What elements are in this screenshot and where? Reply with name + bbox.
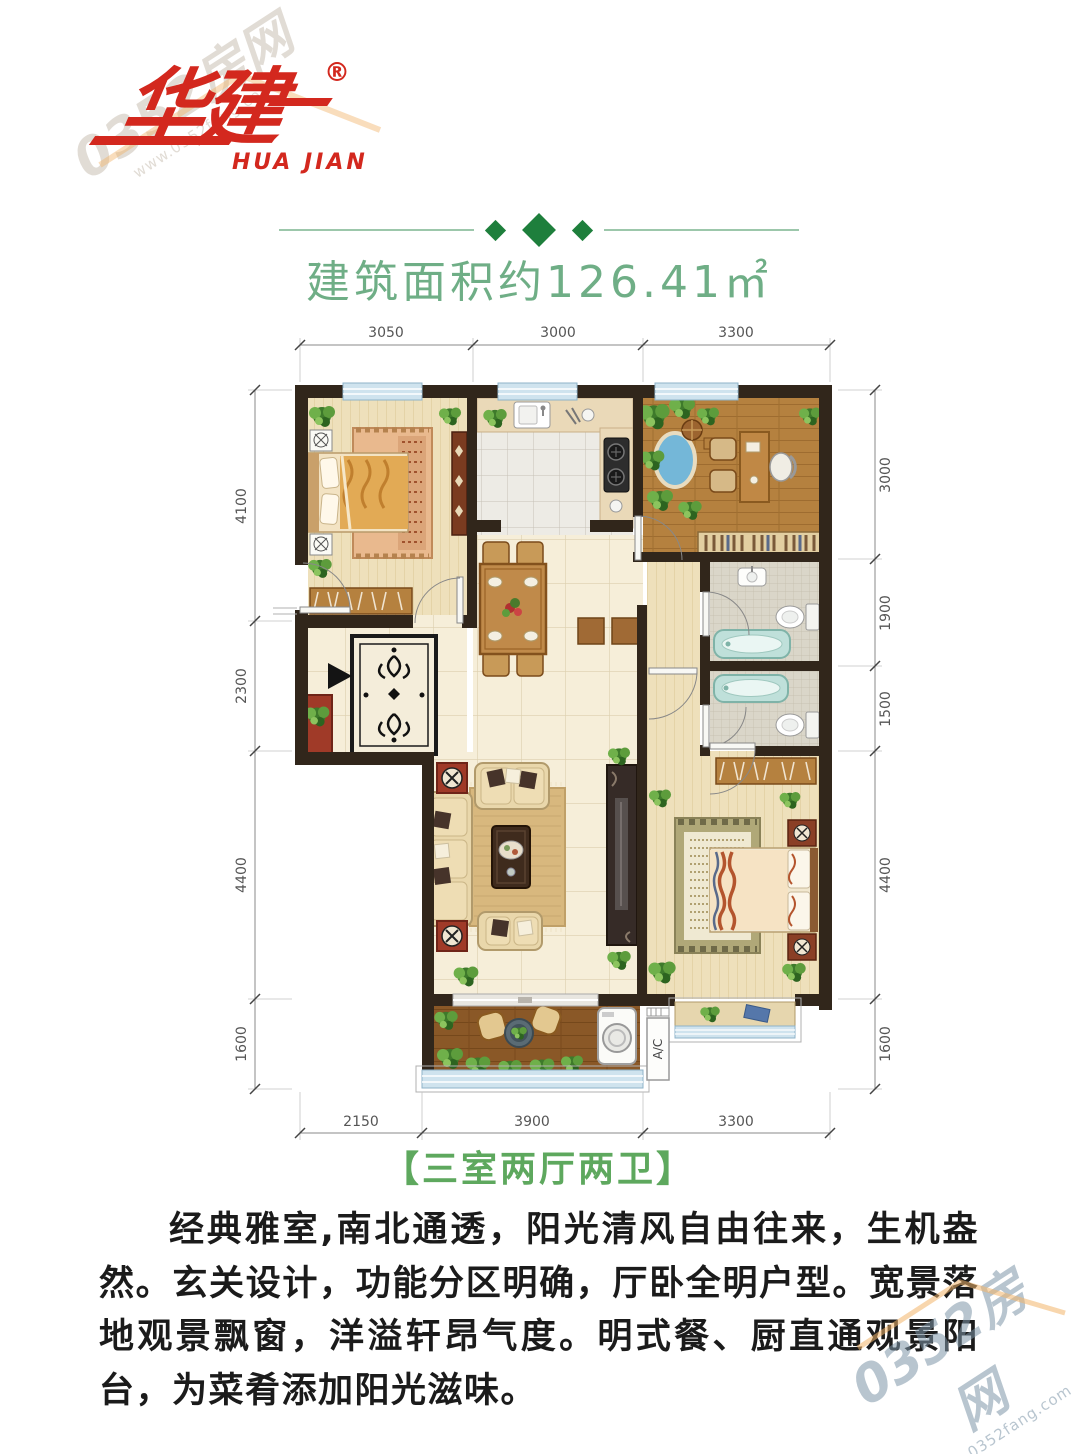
side-stool [612, 618, 638, 644]
dim-label: 1500 [878, 691, 894, 727]
layout-tag: 【三室两厅两卫】 [0, 1140, 1078, 1192]
dim-top: 3050 3000 3300 [295, 325, 835, 382]
master-bay-window [669, 998, 801, 1042]
side-table-compass [437, 921, 467, 951]
diamond-icon [572, 219, 593, 240]
window [498, 383, 577, 400]
logo-chinese-text: 华建 [115, 66, 286, 150]
dim-left: 4100 2300 4400 1600 [234, 385, 292, 1094]
window [655, 383, 738, 400]
page-title: 建筑面积约126.41㎡ [0, 246, 1078, 310]
coffee-table [492, 826, 530, 888]
kitchen-sink [514, 402, 550, 428]
balcony-glazing [416, 1066, 649, 1092]
bedroom1-bed [308, 453, 408, 532]
balcony-slider-door [453, 994, 598, 1006]
bathroom2-toilet [776, 712, 819, 738]
dim-label: 1600 [234, 1026, 250, 1062]
dining-table [480, 564, 546, 654]
dim-label: 1600 [878, 1026, 894, 1062]
kitchen-bowl [582, 409, 594, 421]
ornament-divider [0, 218, 1078, 242]
washing-machine [598, 1008, 636, 1064]
bathroom1-toilet [776, 604, 819, 630]
window [343, 383, 422, 400]
ac-label: A/C [651, 1039, 665, 1060]
dim-label: 3000 [540, 325, 576, 341]
gas-hob [604, 438, 629, 492]
dim-label: 4400 [234, 857, 250, 893]
registered-trademark-icon: ® [324, 58, 350, 88]
study-chair [770, 453, 792, 481]
corridor-floor [647, 562, 700, 751]
kitchen-dish [610, 500, 622, 512]
dim-label: 2300 [234, 668, 250, 704]
diamond-icon [485, 219, 506, 240]
dim-label: 1900 [878, 595, 894, 631]
dim-right: 3000 1900 1500 4400 1600 [838, 385, 894, 1094]
entry-rug [352, 636, 436, 754]
dim-label: 3000 [878, 457, 894, 493]
master-bed [710, 848, 818, 932]
dim-bottom: 2150 3900 3300 [295, 1092, 835, 1140]
bathroom1-sink [738, 566, 766, 586]
dim-label: 3300 [718, 1114, 754, 1130]
floorplan: A/C 3050 3000 3300 2150 3900 3300 [170, 320, 910, 1160]
study-bookshelf [698, 532, 820, 554]
dim-label: 4100 [234, 488, 250, 524]
study-desk [740, 432, 769, 502]
kitchen-stub-wall [590, 520, 633, 532]
description-text: 经典雅室,南北通透，阳光清风自由往来，生机盎然。玄关设计，功能分区明确，厅卧全明… [99, 1204, 979, 1418]
dim-label: 2150 [343, 1114, 379, 1130]
side-stool [578, 618, 604, 644]
guest-chair [710, 438, 736, 460]
dim-label: 4400 [878, 857, 894, 893]
tv-console [607, 765, 637, 945]
master-wardrobe [716, 758, 816, 784]
bathroom2-bathtub [714, 675, 788, 702]
divider-line-left [279, 229, 474, 231]
ac-unit: A/C [647, 1008, 669, 1080]
dim-label: 3300 [718, 325, 754, 341]
kitchen-stub-wall [473, 520, 501, 532]
balcony-table [505, 1019, 533, 1047]
divider-line-right [604, 229, 799, 231]
company-logo: 华建 ® HUA JIAN [92, 58, 382, 188]
dim-label: 3050 [368, 325, 404, 341]
guest-chair [710, 470, 736, 492]
floorplan-image: A/C 3050 3000 3300 2150 3900 3300 [170, 320, 910, 1160]
logo-english-text: HUA JIAN [232, 150, 368, 175]
diamond-icon [522, 213, 556, 247]
bathroom1-bathtub [714, 630, 790, 658]
side-table-compass [437, 763, 467, 793]
flyer-page: 0352房网 www.0352fang.com 华建 ® HUA JIAN 建筑… [0, 0, 1078, 1454]
dim-label: 3900 [514, 1114, 550, 1130]
